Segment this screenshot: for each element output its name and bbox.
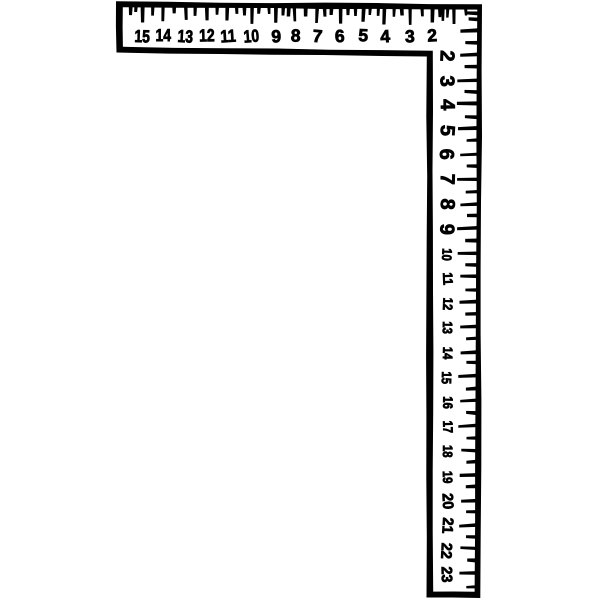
svg-text:7: 7	[312, 26, 323, 47]
svg-text:3: 3	[405, 26, 415, 46]
svg-text:6: 6	[334, 26, 345, 46]
svg-text:4: 4	[436, 99, 458, 111]
svg-text:3: 3	[435, 75, 457, 87]
svg-text:21: 21	[438, 517, 456, 534]
svg-text:15: 15	[134, 26, 150, 46]
svg-text:10: 10	[439, 248, 455, 261]
svg-text:11: 11	[220, 26, 237, 47]
svg-text:15: 15	[439, 371, 454, 384]
svg-text:10: 10	[243, 25, 260, 46]
svg-text:13: 13	[440, 321, 455, 334]
svg-text:5: 5	[358, 25, 369, 45]
svg-text:20: 20	[438, 493, 456, 510]
svg-text:5: 5	[436, 124, 459, 137]
svg-text:7: 7	[436, 173, 458, 185]
svg-text:12: 12	[199, 25, 215, 45]
svg-text:23: 23	[438, 566, 455, 582]
svg-text:11: 11	[440, 272, 456, 286]
svg-text:18: 18	[440, 445, 455, 458]
svg-text:8: 8	[436, 198, 459, 210]
svg-text:12: 12	[440, 297, 456, 310]
svg-text:6: 6	[435, 149, 457, 160]
svg-text:17: 17	[440, 420, 455, 433]
svg-text:19: 19	[440, 471, 455, 484]
svg-text:4: 4	[380, 26, 391, 47]
svg-text:14: 14	[156, 25, 172, 45]
svg-text:9: 9	[271, 26, 282, 46]
svg-text:13: 13	[177, 26, 194, 47]
svg-text:9: 9	[435, 224, 457, 235]
svg-text:14: 14	[440, 347, 455, 360]
svg-text:16: 16	[440, 396, 455, 409]
svg-text:2: 2	[427, 25, 438, 46]
svg-text:2: 2	[435, 50, 457, 62]
svg-text:8: 8	[290, 25, 301, 45]
svg-text:22: 22	[437, 542, 455, 559]
